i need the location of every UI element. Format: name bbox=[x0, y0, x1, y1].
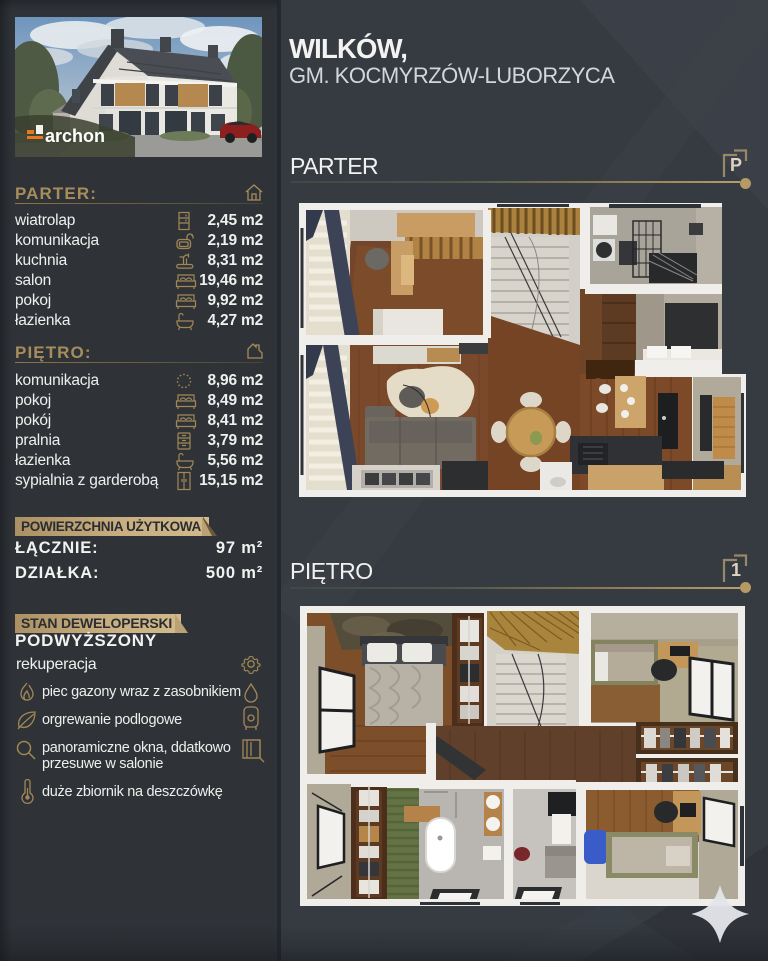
svg-text:1: 1 bbox=[731, 560, 741, 580]
svg-text:P: P bbox=[730, 155, 742, 175]
svg-text:archon: archon bbox=[45, 126, 105, 146]
